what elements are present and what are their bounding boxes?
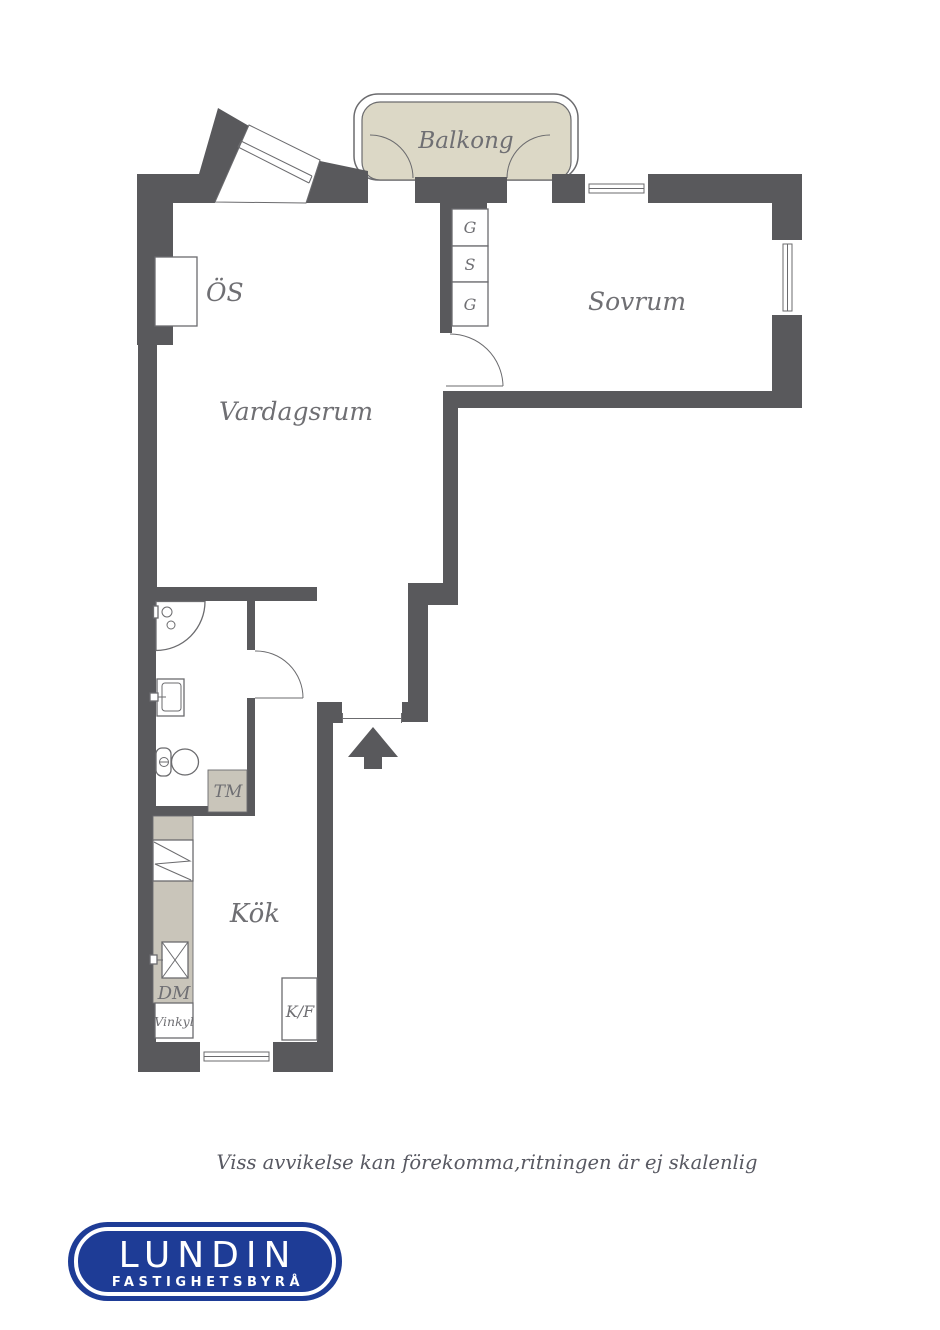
fireplace-label: ÖS: [206, 278, 244, 307]
kitchen-label: Kök: [229, 899, 280, 929]
wine-cooler-label: Vinkyl: [154, 1014, 194, 1029]
window-bedroom-top: [585, 174, 648, 203]
window-kitchen: [200, 1042, 273, 1072]
stove-box: [153, 840, 193, 881]
kitchen-sink-faucet: [150, 955, 157, 964]
wall-hall-right-lower: [408, 605, 428, 702]
lundin-logo: LUNDIN FASTIGHETSBYRÅ: [68, 1222, 342, 1301]
wall-livingroom-bottom: [155, 587, 317, 601]
dishwasher-label: DM: [157, 983, 191, 1004]
closet-label-1: G: [464, 218, 477, 237]
wall-bedroom-top-right: [648, 174, 772, 203]
wall-bedroom-right-upper: [772, 174, 802, 240]
closets: G S G: [452, 209, 488, 326]
room-labels: Sovrum Vardagsrum Kök: [219, 287, 686, 929]
wall-entry-right-post: [402, 702, 428, 722]
wall-kitchen-right: [317, 723, 333, 1042]
bathroom: TM: [150, 602, 247, 813]
closet-label-3: G: [464, 295, 477, 314]
disclaimer-text: Viss avvikelse kan förekomma,ritningen ä…: [216, 1151, 757, 1174]
wall-hall-right-upper: [443, 391, 458, 583]
balcony-label: Balkong: [417, 128, 513, 154]
wall-entry-left-post: [317, 702, 342, 723]
fireplace-box: [155, 257, 197, 326]
wall-left-living: [138, 345, 157, 599]
wall-hall-jog: [408, 583, 458, 605]
bathroom-sink-faucet: [150, 693, 158, 701]
entry-arrow-icon: [348, 727, 398, 769]
wall-bedroom-top-left: [552, 174, 585, 203]
logo-title: LUNDIN: [119, 1235, 298, 1276]
entry-door-threshold: [342, 713, 402, 723]
floorplan-page: Balkong: [0, 0, 940, 1330]
wall-between-balcony-doors: [415, 177, 507, 203]
washing-machine-label: TM: [214, 782, 243, 802]
toilet-bowl: [172, 749, 199, 775]
bathroom-door: [255, 651, 303, 698]
shower-valve: [154, 606, 159, 618]
wall-bathroom-right-lower: [247, 698, 255, 815]
bedroom-door: [446, 334, 503, 386]
closet-label-2: S: [465, 255, 476, 274]
window-bedroom-right: [772, 240, 802, 315]
wall-bathroom-right-upper: [247, 601, 255, 650]
fireplace: ÖS: [155, 257, 244, 326]
wall-closet-corridor: [440, 203, 452, 333]
logo-subtitle: FASTIGHETSBYRÅ: [112, 1274, 304, 1290]
living-room-label: Vardagsrum: [219, 397, 373, 426]
balcony: Balkong: [354, 94, 578, 180]
fridge-freezer-label: K/F: [285, 1002, 315, 1021]
floorplan-drawing: Balkong: [0, 0, 940, 1330]
wall-bedroom-bottom: [443, 391, 802, 408]
bedroom-label: Sovrum: [588, 287, 686, 316]
